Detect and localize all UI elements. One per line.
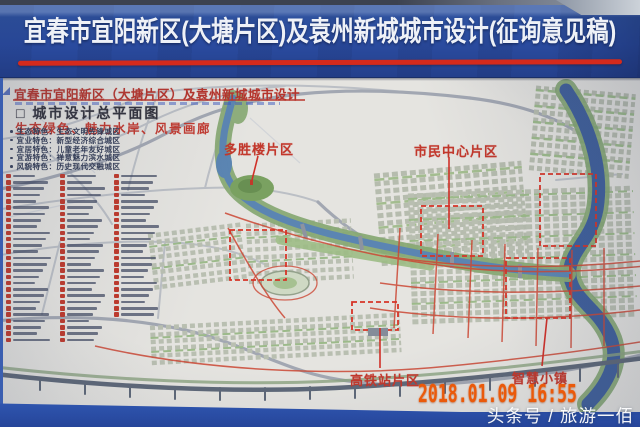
map-label-duoshenglou: 多胜楼片区 <box>224 139 294 158</box>
legend-column <box>6 173 58 343</box>
legend-item <box>6 337 58 343</box>
legend-item <box>60 337 112 343</box>
bullet-dot-icon <box>10 130 13 133</box>
photo-of-planning-board: 宜春市宜阳新区（大塘片区）及袁州新城城市设计 □ 城市设计总平面图 生态绿色、魅… <box>0 0 640 427</box>
watermark: 头条号 / 旅游一佰 <box>487 403 634 427</box>
feature-list: 生态特色：生态文明先锋城区 宜业特色：新型经济综合城区 宜居特色：儿童老年友好城… <box>10 127 120 171</box>
legend-column <box>114 173 166 343</box>
subtitle-underline <box>13 99 305 101</box>
oval-park <box>253 266 317 300</box>
map-legend <box>6 173 166 343</box>
legend-column <box>60 173 112 343</box>
legend-item <box>114 312 166 318</box>
bullet-dot-icon <box>10 139 13 142</box>
bullet-dot-icon <box>10 165 13 168</box>
rail-station <box>368 328 388 336</box>
map-label-gaotiezhan: 高铁站片区 <box>350 370 420 389</box>
banner-drop-shadow <box>0 77 640 81</box>
banner-title: 宜春市宜阳新区(大塘片区)及袁州新城城市设计(征询意见稿) <box>0 14 640 50</box>
feature-item: 风貌特色：历史现代交融城区 <box>10 162 120 171</box>
bullet-dot-icon <box>10 148 13 151</box>
bullet-dot-icon <box>10 157 13 160</box>
frame-left-edge <box>0 78 3 408</box>
map-label-shimin-zhongxin: 市民中心片区 <box>414 141 498 160</box>
